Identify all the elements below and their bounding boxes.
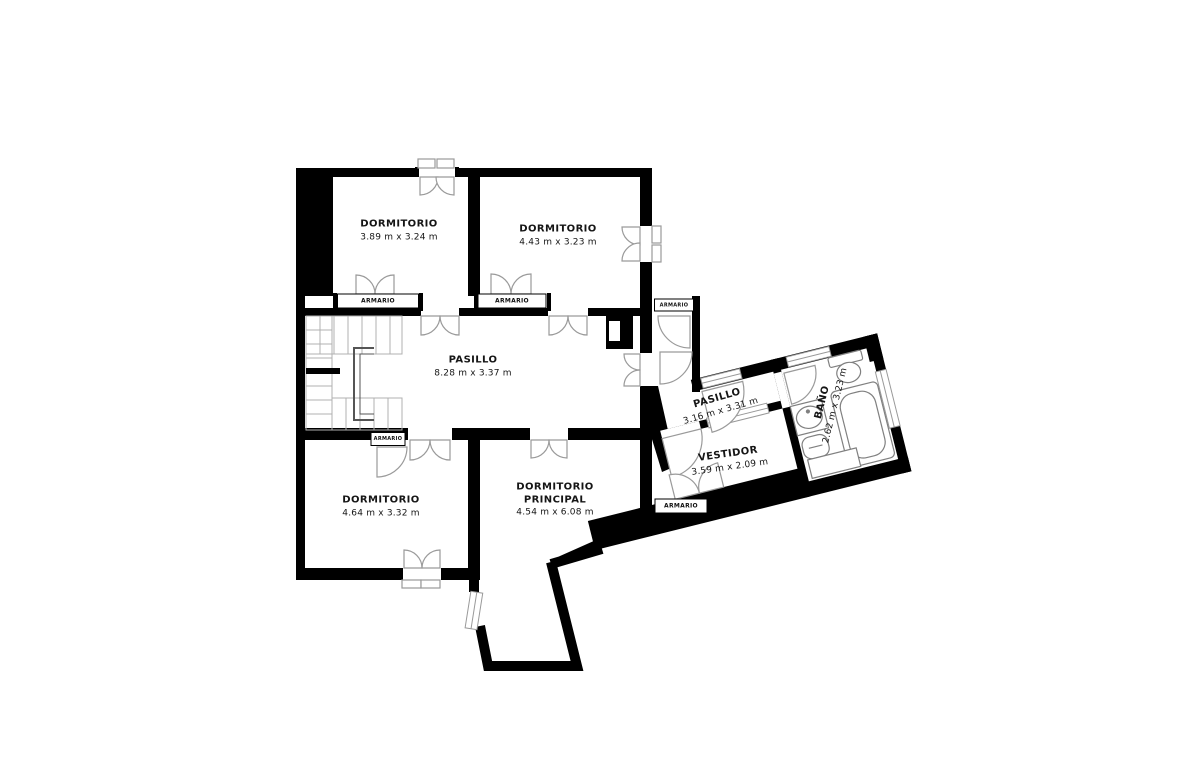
stair-handrail [354,348,374,420]
extension-window [465,591,483,629]
floor-plan-drawing [0,0,1200,757]
closet-bedroom-2: ARMARIO [478,294,547,309]
closet-corridor: ARMARIO [654,299,694,312]
closet-bedroom-3: ARMARIO [371,432,406,446]
stair-divider-wall [306,368,340,374]
walls-extension [474,549,602,666]
chimney-niche [609,321,620,341]
wing-rotated [561,333,912,550]
floor-plan: DORMITORIO 3.89 m x 3.24 m DORMITORIO 4.… [0,0,1200,757]
closet-bedroom-1: ARMARIO [337,294,419,309]
sink [790,399,828,436]
closet-dressing-room: ARMARIO [655,499,708,514]
